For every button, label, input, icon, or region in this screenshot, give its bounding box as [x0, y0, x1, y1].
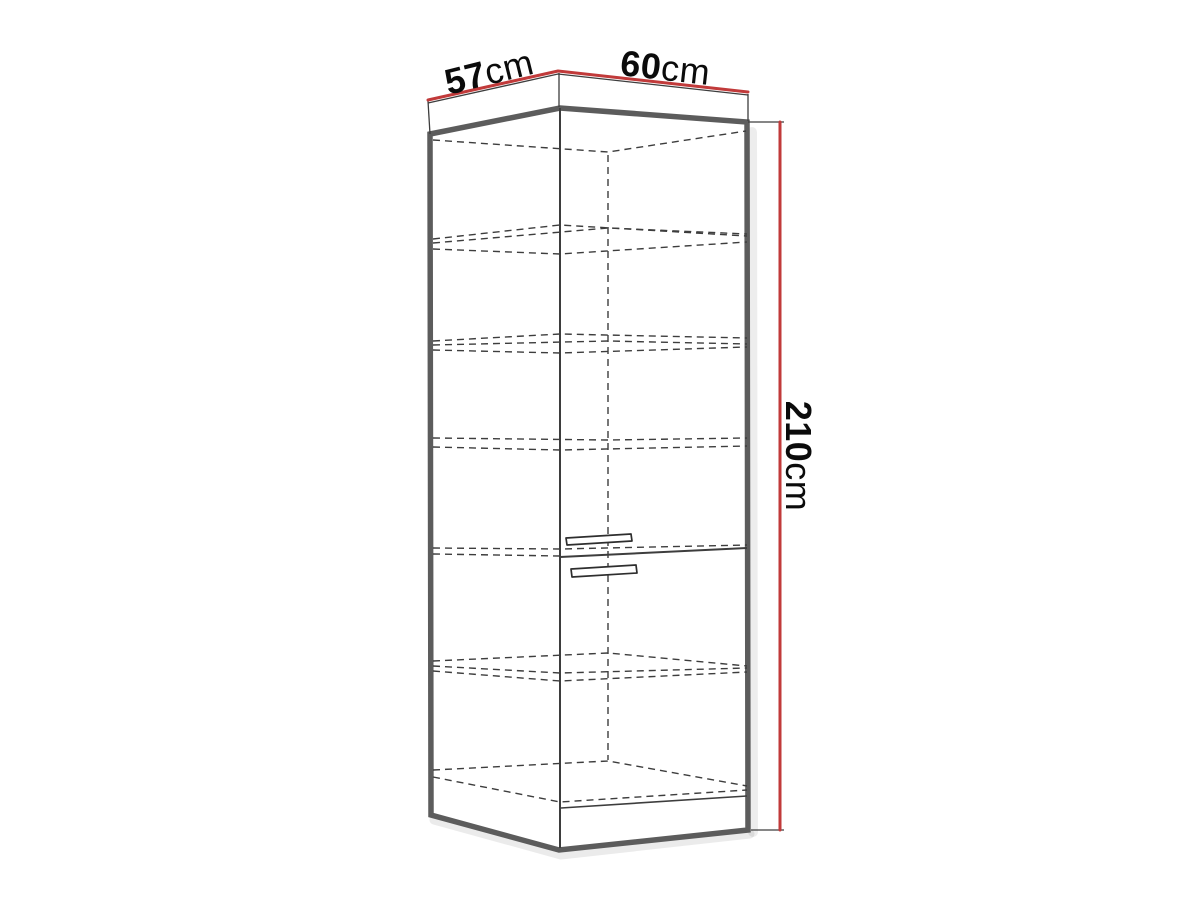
top-face-left-edge [428, 101, 430, 134]
height-unit: cm [778, 462, 819, 511]
width-value: 60 [618, 42, 663, 87]
height-dimension-label: 210cm [778, 401, 819, 512]
depth-dimension-label: 57cm [440, 41, 537, 103]
height-value: 210 [778, 401, 819, 463]
cabinet-body [430, 108, 748, 850]
width-unit: cm [659, 47, 712, 93]
cabinet-outline [430, 108, 748, 850]
depth-unit: cm [480, 41, 537, 93]
width-dimension-label: 60cm [618, 42, 712, 93]
cabinet-dimension-diagram: 57cm 60cm 210cm [0, 0, 1200, 900]
diagram-canvas: 57cm 60cm 210cm [0, 0, 1200, 900]
shadow-right [752, 132, 753, 832]
